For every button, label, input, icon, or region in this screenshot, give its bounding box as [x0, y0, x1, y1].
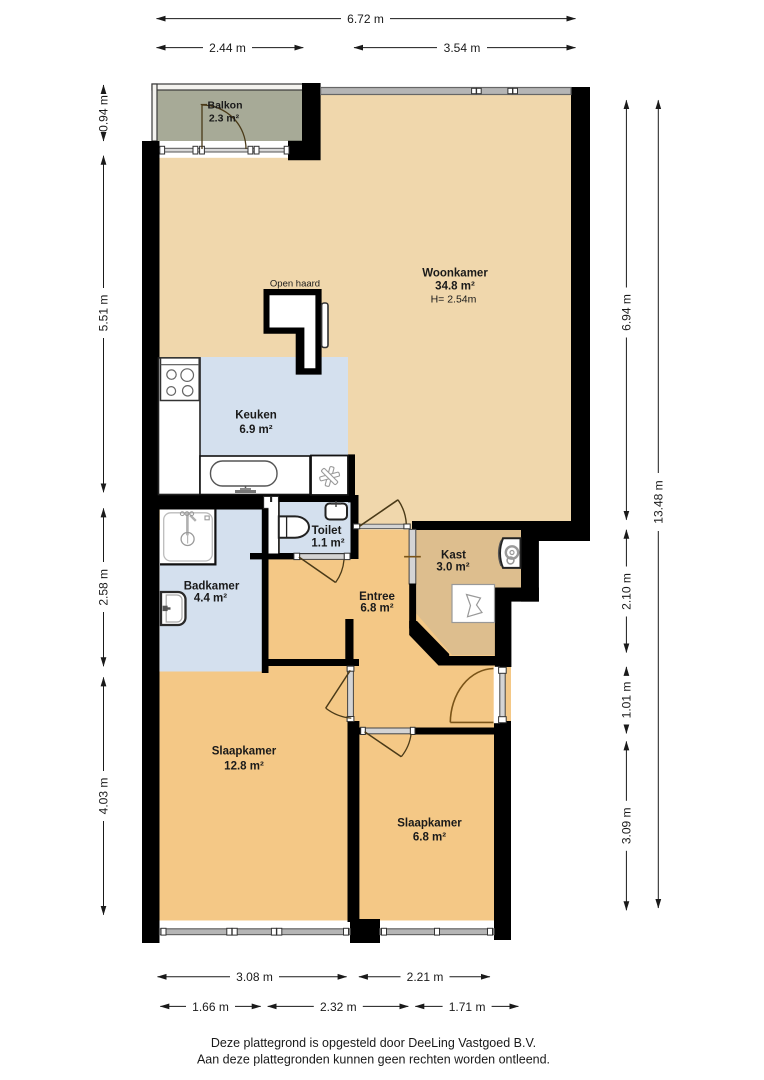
svg-text:3.0 m²: 3.0 m²	[436, 562, 469, 574]
svg-text:13.48 m: 13.48 m	[651, 480, 665, 523]
svg-text:3.09 m: 3.09 m	[619, 807, 633, 844]
svg-text:1.71 m: 1.71 m	[449, 1000, 486, 1014]
svg-text:Aan deze plattegronden kunnen: Aan deze plattegronden kunnen geen recht…	[197, 1053, 550, 1067]
svg-text:3.54 m: 3.54 m	[444, 41, 481, 55]
svg-text:34.8 m²: 34.8 m²	[435, 281, 475, 293]
svg-text:2.10 m: 2.10 m	[619, 573, 633, 610]
svg-text:6.94 m: 6.94 m	[619, 294, 633, 331]
svg-text:5.51 m: 5.51 m	[97, 295, 111, 332]
svg-text:Slaapkamer: Slaapkamer	[212, 746, 277, 758]
svg-text:2.32 m: 2.32 m	[320, 1000, 357, 1014]
svg-text:2.44 m: 2.44 m	[209, 41, 246, 55]
svg-text:Deze plattegrond is opgesteld: Deze plattegrond is opgesteld door DeeLi…	[211, 1036, 536, 1050]
svg-text:Badkamer: Badkamer	[184, 581, 240, 593]
svg-text:Keuken: Keuken	[235, 410, 277, 422]
svg-text:4.03 m: 4.03 m	[97, 778, 111, 815]
svg-text:2.3 m²: 2.3 m²	[209, 113, 240, 125]
svg-text:0.94 m: 0.94 m	[97, 95, 111, 132]
svg-text:H= 2.54m: H= 2.54m	[431, 294, 477, 306]
svg-text:3.08 m: 3.08 m	[236, 970, 273, 984]
svg-text:4.4 m²: 4.4 m²	[194, 593, 227, 605]
svg-text:6.8 m²: 6.8 m²	[413, 832, 446, 844]
svg-text:Balkon: Balkon	[207, 100, 242, 112]
svg-text:Open haard: Open haard	[270, 279, 320, 290]
svg-text:2.21 m: 2.21 m	[407, 970, 444, 984]
svg-text:Toilet: Toilet	[312, 525, 342, 537]
svg-text:1.01 m: 1.01 m	[619, 682, 633, 719]
svg-text:6.8 m²: 6.8 m²	[360, 603, 393, 615]
svg-text:6.9 m²: 6.9 m²	[239, 424, 272, 436]
svg-text:2.58 m: 2.58 m	[97, 569, 111, 606]
svg-text:6.72 m: 6.72 m	[347, 12, 384, 26]
svg-text:Slaapkamer: Slaapkamer	[397, 818, 462, 830]
svg-text:Woonkamer: Woonkamer	[422, 268, 488, 280]
svg-text:1.66 m: 1.66 m	[192, 1000, 229, 1014]
svg-text:1.1 m²: 1.1 m²	[311, 538, 344, 550]
svg-text:12.8 m²: 12.8 m²	[224, 761, 264, 773]
svg-text:Kast: Kast	[441, 550, 466, 562]
svg-text:Entree: Entree	[359, 591, 395, 603]
